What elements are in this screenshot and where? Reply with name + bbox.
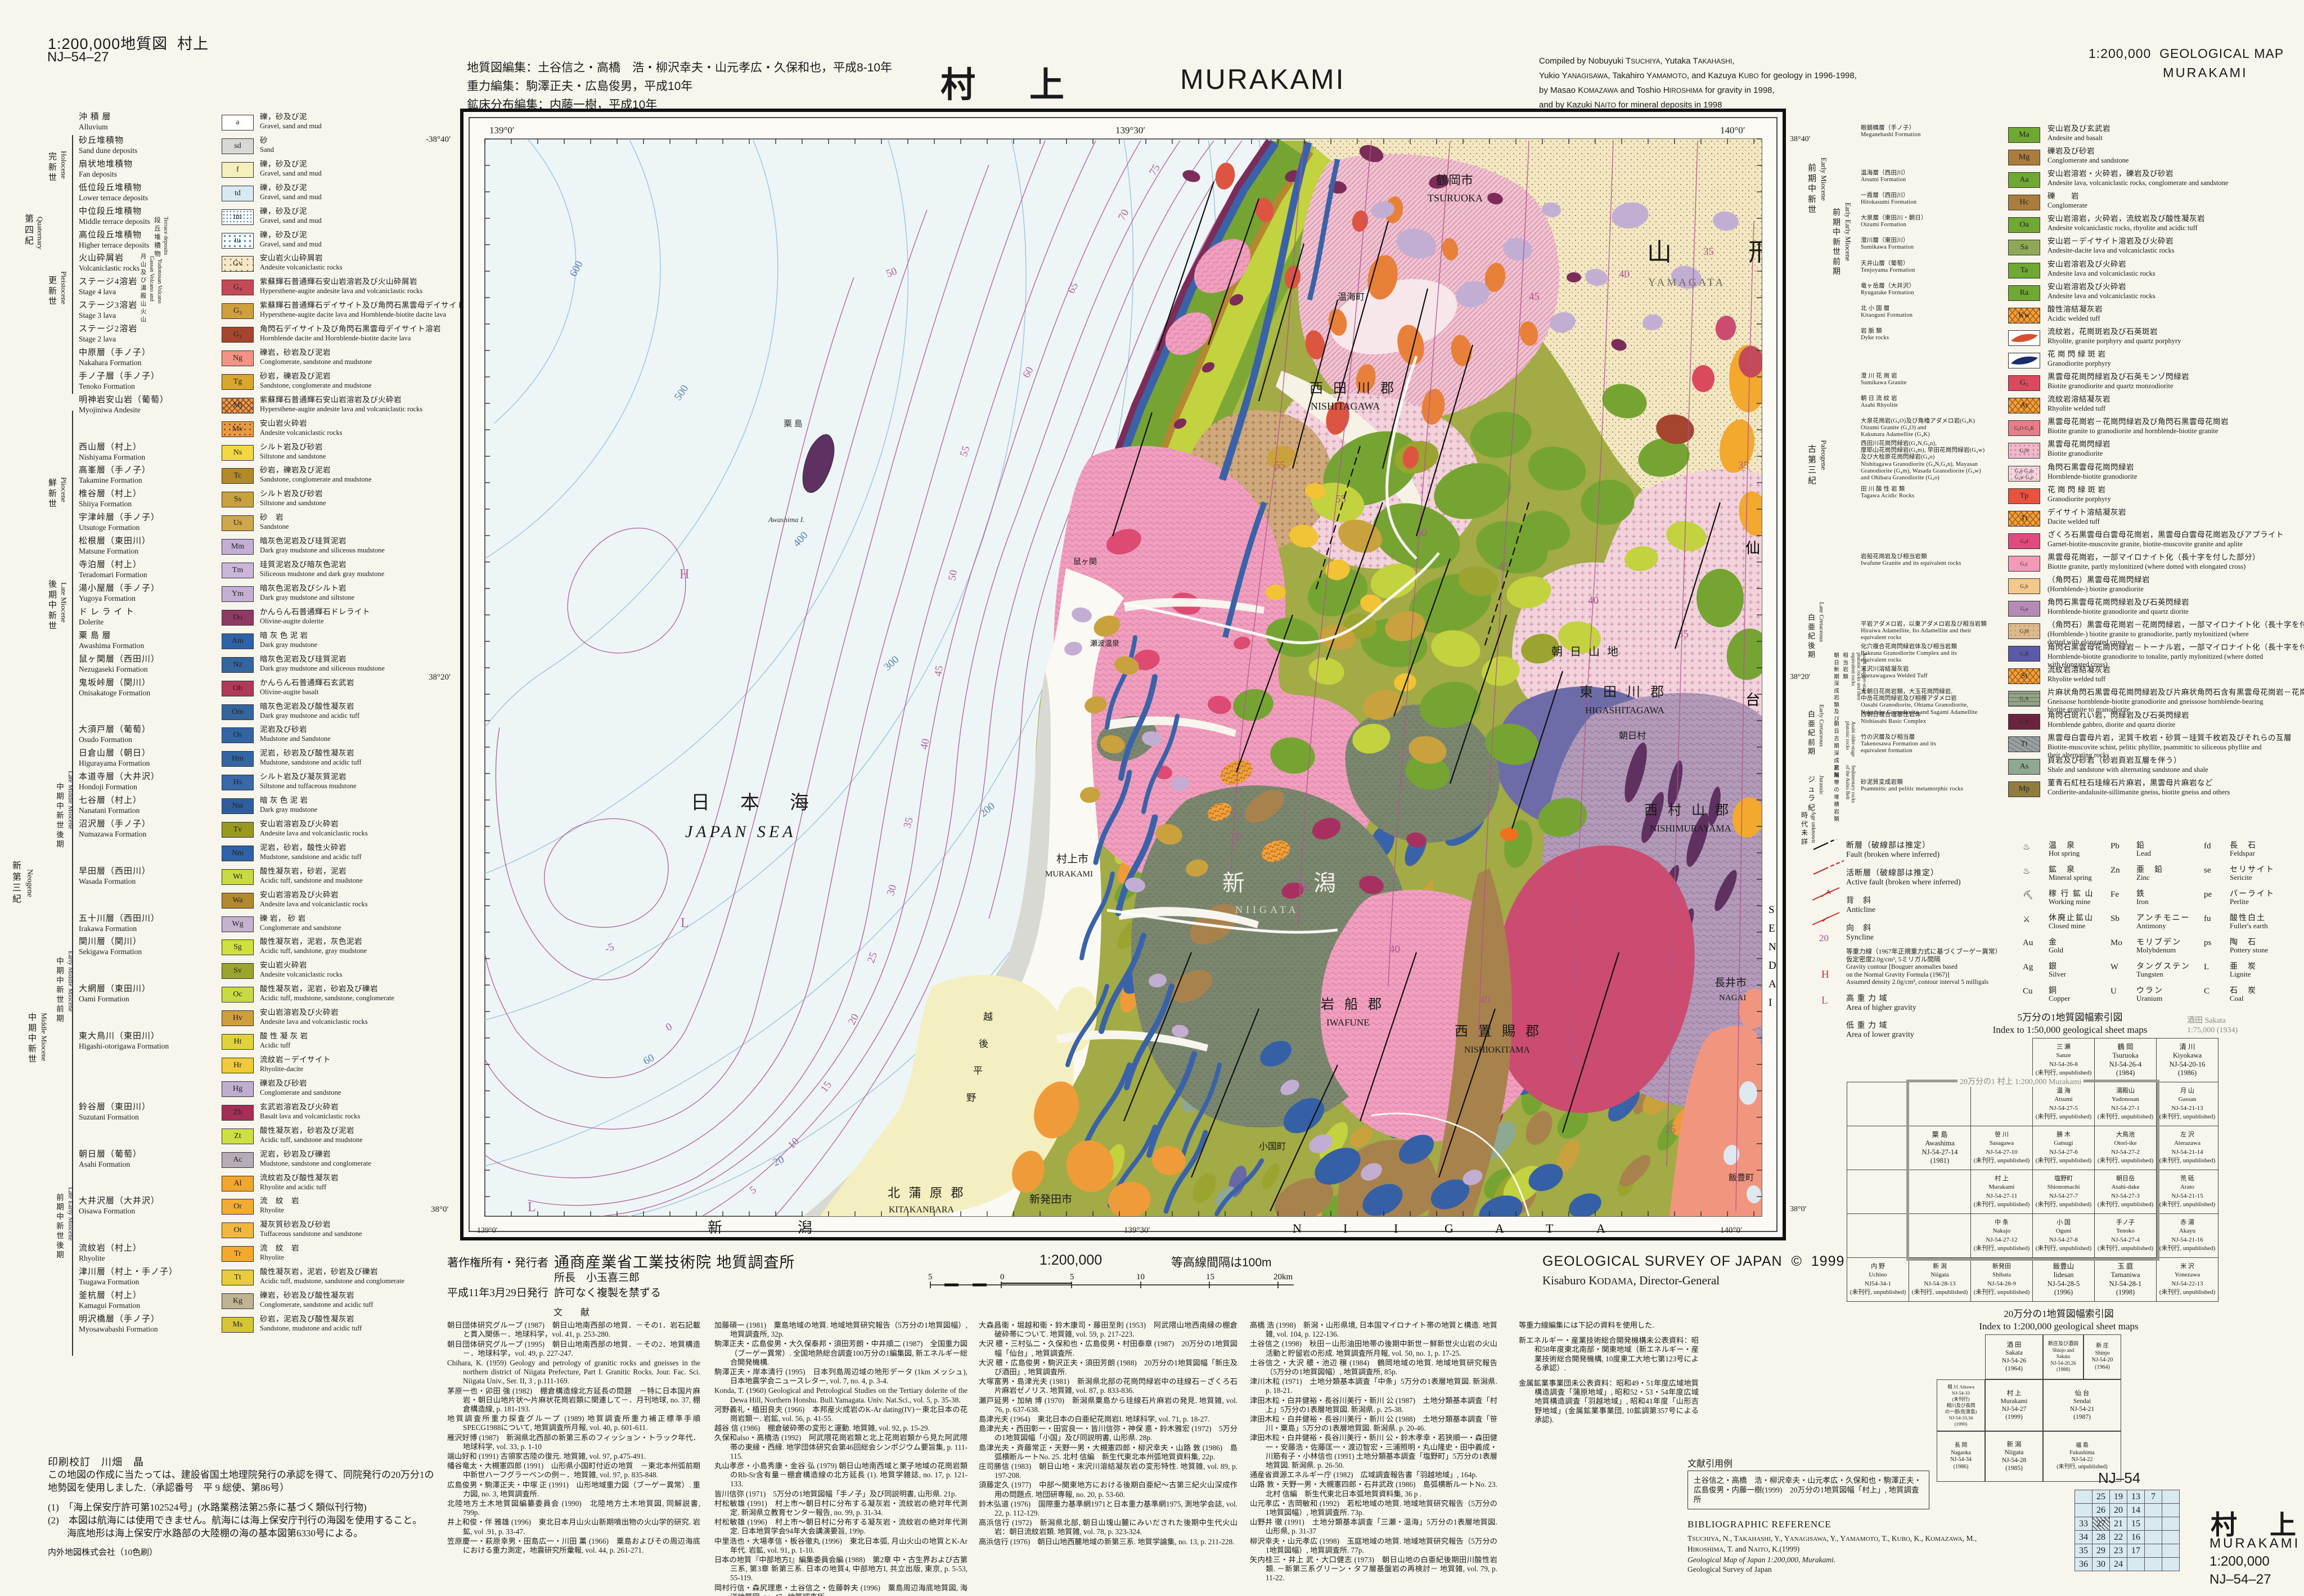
svg-text:西 置 賜 郡: 西 置 賜 郡: [1455, 1024, 1542, 1039]
svg-text:温海町: 温海町: [1338, 292, 1365, 302]
svg-text:村上市: 村上市: [1056, 853, 1088, 865]
svg-text:140°0′: 140°0′: [1720, 1226, 1742, 1235]
svg-text:TSURUOKA: TSURUOKA: [1428, 192, 1483, 204]
svg-text:139°0′: 139°0′: [477, 1226, 498, 1235]
svg-text:JAPAN SEA: JAPAN SEA: [685, 822, 796, 841]
svg-text:40: 40: [1619, 268, 1630, 280]
svg-text:NAGAI: NAGAI: [1719, 993, 1746, 1002]
svg-text:55: 55: [1275, 460, 1285, 471]
svg-text:30: 30: [1232, 831, 1243, 843]
svg-text:10: 10: [1136, 1273, 1145, 1282]
svg-text:N: N: [1293, 1221, 1302, 1235]
svg-text:45: 45: [1498, 561, 1509, 573]
svg-text:後: 後: [979, 1038, 988, 1049]
svg-text:G: G: [1444, 1221, 1453, 1235]
svg-text:飯豊町: 飯豊町: [1729, 1173, 1754, 1183]
svg-text:140°0′: 140°0′: [1720, 125, 1745, 136]
svg-text:鼠ヶ関: 鼠ヶ関: [1073, 558, 1097, 567]
svg-text:L: L: [528, 1200, 536, 1215]
svg-text:粟 島: 粟 島: [784, 419, 803, 429]
svg-text:長井市: 長井市: [1714, 977, 1747, 989]
svg-text:I: I: [1768, 997, 1772, 1009]
svg-text:A: A: [1596, 1221, 1605, 1235]
svg-text:L: L: [681, 916, 689, 930]
svg-text:平: 平: [973, 1066, 983, 1076]
svg-text:潟: 潟: [798, 1220, 812, 1236]
svg-text:139°30′: 139°30′: [1115, 125, 1145, 136]
svg-text:5: 5: [1070, 1273, 1074, 1282]
svg-text:139°0′: 139°0′: [489, 125, 515, 136]
svg-text:40: 40: [1588, 595, 1599, 606]
svg-text:東 田 川 郡: 東 田 川 郡: [1579, 685, 1667, 700]
svg-text:15: 15: [1206, 1273, 1214, 1282]
svg-text:北 蒲 原 郡: 北 蒲 原 郡: [888, 1186, 966, 1200]
svg-text:仙: 仙: [1745, 540, 1760, 556]
svg-text:0: 0: [1000, 1273, 1005, 1282]
svg-text:5: 5: [928, 1273, 933, 1282]
svg-text:40: 40: [1479, 994, 1490, 1006]
svg-text:野: 野: [966, 1093, 976, 1103]
svg-text:NIIGATA: NIIGATA: [1235, 904, 1299, 915]
svg-text:新発田市: 新発田市: [1029, 1193, 1072, 1206]
svg-text:西 村 山 郡: 西 村 山 郡: [1644, 803, 1732, 818]
svg-text:鶴岡市: 鶴岡市: [1436, 173, 1473, 187]
svg-text:45: 45: [932, 665, 946, 677]
svg-text:A: A: [1768, 978, 1776, 990]
svg-text:25: 25: [1665, 1123, 1676, 1135]
svg-text:IWAFUNE: IWAFUNE: [1326, 1017, 1370, 1028]
svg-text:20km: 20km: [1273, 1273, 1293, 1282]
svg-text:S: S: [1768, 904, 1775, 916]
svg-text:越: 越: [983, 1011, 993, 1022]
svg-text:西 田 川 郡: 西 田 川 郡: [1309, 381, 1397, 396]
svg-text:MURAKAMI: MURAKAMI: [1045, 870, 1093, 879]
svg-text:NISHIOKITAMA: NISHIOKITAMA: [1464, 1045, 1530, 1055]
svg-text:139°30′: 139°30′: [1124, 1226, 1150, 1235]
svg-text:朝日村: 朝日村: [1619, 731, 1646, 741]
svg-text:朝 日 山 地: 朝 日 山 地: [1551, 645, 1621, 658]
svg-text:山 形: 山 形: [1647, 239, 1782, 266]
svg-text:E: E: [1768, 923, 1775, 934]
svg-text:NISHIMURAYAMA: NISHIMURAYAMA: [1650, 823, 1732, 834]
svg-text:45: 45: [1569, 1056, 1580, 1068]
svg-text:新: 新: [708, 1220, 722, 1236]
svg-text:YAMAGATA: YAMAGATA: [1648, 277, 1725, 289]
svg-text:N: N: [1768, 941, 1776, 953]
svg-text:岩 船 郡: 岩 船 郡: [1321, 997, 1385, 1012]
svg-text:35: 35: [1738, 460, 1749, 471]
svg-text:Awashima I.: Awashima I.: [768, 515, 804, 524]
svg-text:A: A: [1495, 1221, 1504, 1235]
svg-text:瀬波温泉: 瀬波温泉: [1090, 639, 1119, 648]
svg-text:45: 45: [1529, 291, 1540, 303]
svg-text:HIGASHITAGAWA: HIGASHITAGAWA: [1585, 705, 1665, 716]
svg-text:T: T: [1546, 1221, 1554, 1235]
svg-text:I: I: [1394, 1221, 1398, 1235]
svg-text:KITAKANBARA: KITAKANBARA: [889, 1205, 954, 1215]
svg-text:I: I: [1343, 1221, 1347, 1235]
svg-text:日 本 海: 日 本 海: [691, 792, 814, 813]
svg-text:D: D: [1768, 960, 1776, 972]
svg-text:H: H: [679, 567, 689, 582]
svg-text:小国町: 小国町: [1259, 1141, 1286, 1152]
svg-text:50: 50: [946, 569, 960, 582]
svg-text:40: 40: [1389, 943, 1400, 955]
svg-text:NISHITAGAWA: NISHITAGAWA: [1311, 401, 1380, 412]
svg-text:新 潟: 新 潟: [1222, 870, 1344, 896]
